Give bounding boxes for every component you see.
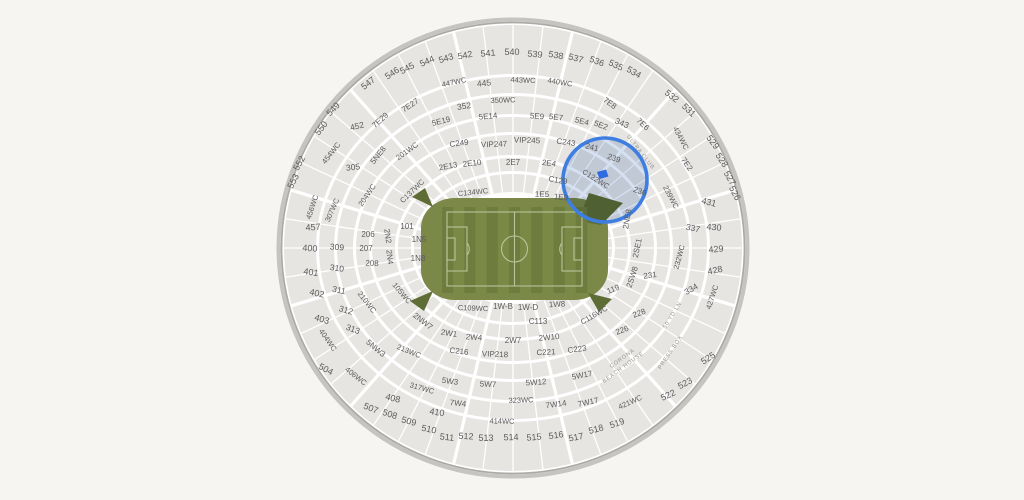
section-label-1W-D[interactable]: 1W-D [518,303,539,312]
section-label-C113[interactable]: C113 [529,317,548,326]
section-label-C109WC[interactable]: C109WC [458,303,489,313]
section-label-401[interactable]: 401 [303,266,319,278]
stadium-seat-map: 5465455445435425415405395385375365355345… [0,0,1024,500]
section-label-2N4[interactable]: 2N4 [384,249,395,265]
section-label-539[interactable]: 539 [527,49,543,60]
section-label-400[interactable]: 400 [302,243,318,254]
section-label-516[interactable]: 516 [548,429,564,441]
section-label-414WC[interactable]: 414WC [489,416,515,425]
seat-map-page: 5465455445435425415405395385375365355345… [0,0,1024,500]
pitch-stripe [464,207,475,293]
section-label-2W7[interactable]: 2W7 [505,336,522,345]
section-label-1N5[interactable]: 1N5 [412,235,427,244]
section-label-2E4[interactable]: 2E4 [541,158,557,169]
section-label-206[interactable]: 206 [361,230,375,239]
section-label-540[interactable]: 540 [504,47,519,57]
section-label-443WC[interactable]: 443WC [510,75,536,85]
section-label-429[interactable]: 429 [708,244,724,255]
section-label-352[interactable]: 352 [456,100,472,112]
section-label-VIP218[interactable]: VIP218 [482,349,509,359]
section-label-5E14[interactable]: 5E14 [478,111,498,122]
section-label-541[interactable]: 541 [480,48,496,59]
section-label-445[interactable]: 445 [476,77,491,88]
section-label-231[interactable]: 231 [643,270,658,281]
section-label-207[interactable]: 207 [359,244,373,253]
section-label-VIP245[interactable]: VIP245 [514,135,541,145]
section-label-1E9[interactable]: 1E9 [553,192,569,202]
section-label-1W8[interactable]: 1W8 [549,299,566,309]
section-label-101[interactable]: 101 [400,222,414,231]
pitch-stripe [475,207,486,293]
section-label-511[interactable]: 511 [439,431,454,442]
pitch-stripe [531,207,542,293]
section-label-457[interactable]: 457 [305,222,321,233]
section-label-2W4[interactable]: 2W4 [465,332,483,342]
section-label-323WC[interactable]: 323WC [508,395,534,405]
section-label-VIP247[interactable]: VIP247 [481,139,508,149]
section-label-430[interactable]: 430 [706,222,722,233]
section-label-310[interactable]: 310 [329,262,345,274]
section-label-2W10[interactable]: 2W10 [538,332,560,343]
pitch-stripe [520,207,531,293]
section-label-512[interactable]: 512 [458,431,474,442]
section-label-5E7[interactable]: 5E7 [548,112,564,123]
section-label-350WC[interactable]: 350WC [490,95,516,105]
section-label-208[interactable]: 208 [365,259,379,268]
section-label-1E5[interactable]: 1E5 [535,190,550,200]
section-label-513[interactable]: 513 [478,433,493,443]
pitch-stripe [487,207,498,293]
section-label-C221[interactable]: C221 [536,347,556,357]
section-label-515[interactable]: 515 [526,432,542,443]
pitch-stripe [442,207,453,293]
section-label-2E7[interactable]: 2E7 [506,158,521,167]
section-label-514[interactable]: 514 [503,432,518,443]
section-label-1W-B[interactable]: 1W-B [493,302,513,311]
pitch-stripe [542,207,553,293]
section-label-5W12[interactable]: 5W12 [525,377,547,387]
section-label-1N8[interactable]: 1N8 [411,254,426,263]
pitch-stripe [498,207,509,293]
section-label-5W7[interactable]: 5W7 [480,379,497,389]
section-label-305[interactable]: 305 [345,161,360,172]
section-label-7W4[interactable]: 7W4 [449,398,467,409]
section-label-5E9[interactable]: 5E9 [530,111,545,121]
section-label-309[interactable]: 309 [329,241,344,252]
